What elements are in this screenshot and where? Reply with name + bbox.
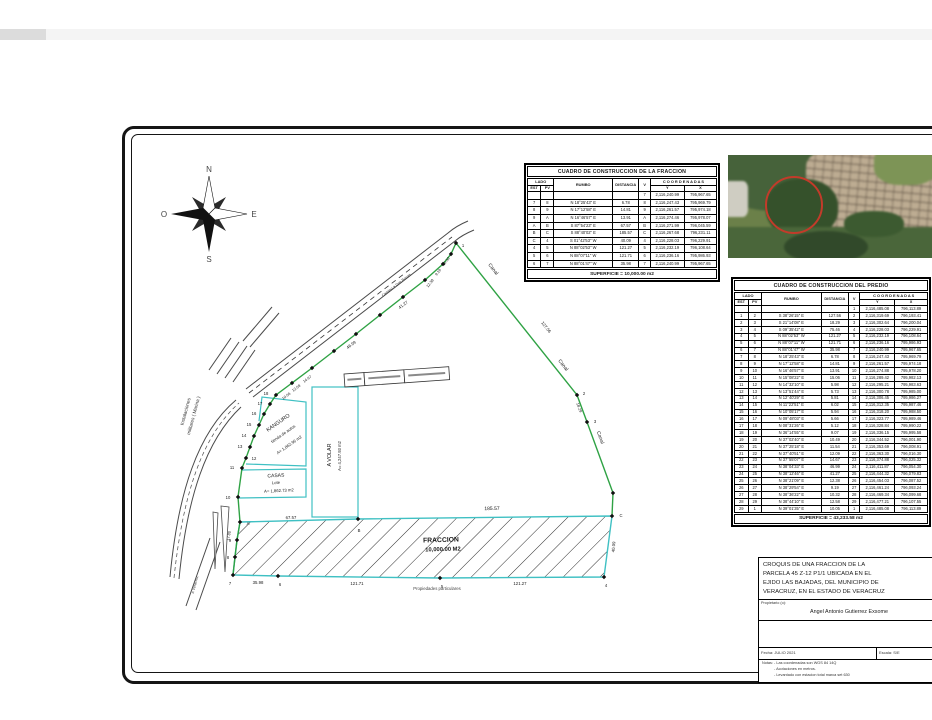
distance-label: 185.57 — [484, 506, 500, 512]
vertex-label: 18 — [264, 391, 269, 396]
table-row: BCS 88°40'02" E185.57C2,116,267.68796,23… — [528, 230, 717, 238]
empty-box — [759, 621, 932, 648]
vertex-marker — [252, 434, 256, 438]
distance-label: 40.09 — [611, 541, 617, 553]
distance-label: 35.98 — [253, 580, 264, 585]
distance-label: 121.71 — [350, 581, 364, 586]
area-label-fraccion: 10,000.00 M2 — [425, 547, 461, 554]
vertex-label: 6 — [279, 582, 282, 587]
table-row: 2223N 37°55'07" E14.67232,116,374.88796,… — [735, 457, 928, 464]
table-row: 45N 88°02'53" W121.2752,116,232.19796,10… — [735, 333, 928, 340]
vertex-marker — [257, 423, 261, 427]
table-row: 1213N 13°51'44" E5.73132,116,300.78795,9… — [735, 388, 928, 395]
distance-label: 127.56 — [540, 320, 552, 334]
table-row: 67N 88°01'47" W35.9872,116,240.99795,967… — [528, 260, 717, 268]
table-row: 12,116,485.08796,113.89 — [735, 306, 928, 313]
vertex-label: 8 — [227, 555, 230, 560]
croquis-title: CROQUIS DE UNA FRACCION DE LA PARCELA 45… — [759, 558, 932, 600]
table-row: 1011N 15°08'22" E15.06112,116,289.42795,… — [735, 375, 928, 382]
area-label-fraccion: FRACCION — [423, 537, 459, 545]
vertex-label: 1 — [462, 243, 465, 248]
table-row: 2627N 38°29'54" E9.19272,116,461.24796,0… — [735, 485, 928, 492]
table-cuadro-fraccion: CUADRO DE CONSTRUCCION DE LA FRACCIONLAD… — [524, 163, 720, 282]
table-row: 2526N 38°21'09" E12.38262,116,454.03796,… — [735, 478, 928, 485]
table-row: 72,116,240.99795,967.65 — [528, 192, 717, 200]
table-cuadro-predio: CUADRO DE CONSTRUCCION DEL PREDIOLADORUM… — [731, 277, 931, 527]
distance-label: 9.19 — [434, 268, 442, 276]
lot-avolar — [312, 387, 358, 517]
table-row: 1112N 14°32'10" E5.98122,116,295.21795,9… — [735, 381, 928, 388]
vertex-label: 10 — [226, 495, 231, 500]
table-row: 2122N 37°40'51" E12.09222,116,363.30796,… — [735, 450, 928, 457]
table-row: 2324N 38°04'33" E46.99242,116,411.87796,… — [735, 464, 928, 471]
table-row: 1920N 37°02'40" E10.49202,116,344.52796,… — [735, 437, 928, 444]
vertex-label: 12 — [252, 456, 257, 461]
construction-table: LADORUMBODISTANCIAVC O O R D E N A D A S… — [734, 292, 928, 513]
lot-label-casas: A= 1,862.73 m2 — [264, 487, 295, 494]
canal-label: Canal — [486, 262, 499, 276]
compass-o: O — [161, 210, 167, 219]
vertex-label: C — [619, 513, 622, 518]
vertex-label: A — [247, 521, 250, 526]
vertex-label: 17 — [258, 401, 263, 406]
table-row: 1819N 36°14'55" E9.07192,116,336.15795,9… — [735, 430, 928, 437]
table-row: 2021N 37°25'18" E11.54212,116,353.69796,… — [735, 444, 928, 451]
lot-label-casas: CASAS — [267, 473, 285, 480]
vertex-marker — [585, 420, 589, 424]
lot-label-avolar: A VOLAR — [327, 443, 333, 466]
vertex-label: 4 — [605, 583, 608, 588]
commerce-strip — [344, 367, 450, 387]
satellite-image — [728, 155, 932, 258]
compass-rose: N S E O — [161, 165, 257, 264]
table-row: 2425N 38°12'46" E41.27252,116,444.32796,… — [735, 471, 928, 478]
escala-cell: Escala: S/E — [877, 648, 932, 659]
table-row: 45N 88°02'53" W121.2752,116,232.19796,10… — [528, 245, 717, 253]
table-row: 56N 88°07'11" W121.7162,116,236.16795,98… — [735, 340, 928, 347]
fecha-cell: Fecha: JULIO 2021 — [759, 648, 877, 659]
table-row: 2728N 38°36'22" E10.32282,116,469.34796,… — [735, 492, 928, 499]
compass-n: N — [206, 165, 212, 174]
table-row: 56N 88°07'11" W121.7162,116,236.16795,98… — [528, 252, 717, 260]
table-row: 1617N 09°48'03" E5.66172,116,323.77795,9… — [735, 416, 928, 423]
table-title: CUADRO DE CONSTRUCCION DEL PREDIO — [734, 280, 928, 291]
vertex-marker — [248, 445, 252, 449]
table-row: 1516N 10°05'17" E5.94162,116,318.20795,9… — [735, 409, 928, 416]
table-title: CUADRO DE CONSTRUCCION DE LA FRACCION — [527, 166, 717, 177]
distance-label: 18.29 — [575, 402, 583, 414]
satellite-texture — [728, 155, 932, 258]
neighbor-label: Propiedades particulares — [413, 586, 461, 591]
table-row: 78N 18°25'43" E6.7882,116,247.43795,969.… — [735, 354, 928, 361]
vertex-label: 11 — [230, 465, 235, 470]
table-row: 89N 17°12'58" E14.8192,116,261.57795,974… — [735, 361, 928, 368]
compass-s: S — [206, 255, 211, 264]
vertex-marker — [611, 491, 615, 495]
table-row: 9AN 16°46'57" E13.91A2,116,274.46795,978… — [528, 214, 717, 222]
meta-row: Fecha: JULIO 2021 Escala: S/E — [759, 648, 932, 660]
vertex-marker — [244, 456, 248, 460]
lot-label-casas: Lote — [272, 480, 281, 485]
table-row: 1718N 08°31'26" E5.12182,116,328.84795,9… — [735, 423, 928, 430]
owner-box: Propietario (o): Angel Antonio Gutierrez… — [759, 600, 932, 621]
location-circle — [765, 176, 823, 234]
fraccion-polygon — [233, 516, 612, 578]
vertex-label: B — [358, 528, 361, 533]
vertex-label: 13 — [238, 444, 243, 449]
canal-label: Canal — [556, 358, 569, 372]
table-row: 23S 21°14'08" E18.2932,116,302.64796,200… — [735, 319, 928, 326]
vertex-label: 2 — [583, 391, 586, 396]
scanned-survey-sheet: N S E O CanalCanalCanal127.5618.2941.274… — [0, 0, 932, 720]
vertex-label: 16 — [252, 411, 257, 416]
table-row: C4S 01°42'53" W40.0942,116,228.03796,229… — [528, 237, 717, 245]
construction-table: LADORUMBODISTANCIAVC O O R D E N A D A S… — [527, 178, 717, 268]
notes-box: Notas: - Las coordenadas son WGS 84 14Q … — [759, 660, 932, 682]
distance-label: 121.27 — [513, 581, 527, 586]
table-row: 910N 16°46'57" E13.91102,116,274.88795,9… — [735, 368, 928, 375]
road-label: a Veracruz — [191, 575, 200, 594]
table-row: 1415N 11°22'51" E6.02152,116,312.35795,9… — [735, 402, 928, 409]
superficie-footer: SUPERFICIE = 10,000.00 m2 — [527, 269, 717, 279]
table-row: 1314N 12°40'29" E5.81142,116,306.45795,9… — [735, 395, 928, 402]
distance-label: 14.67 — [302, 375, 312, 384]
distance-label: 67.57 — [286, 515, 297, 520]
canal-label: Canal — [595, 430, 605, 444]
table-row: 12S 38°26'15" E127.5622,116,319.69796,19… — [735, 313, 928, 320]
owner-label: Propietario (o): — [761, 601, 786, 605]
table-row: 291N 39°01'35" E10.0512,116,485.08796,11… — [735, 506, 928, 513]
title-block: CROQUIS DE UNA FRACCION DE LA PARCELA 45… — [758, 557, 932, 683]
vertex-label: 7 — [229, 581, 232, 586]
vertex-label: 14 — [242, 433, 247, 438]
owner-name: Angel Antonio Gutierrez Exsome — [759, 609, 932, 615]
superficie-footer: SUPERFICIE = 43,233.58 m2 — [734, 514, 928, 524]
compass-e: E — [251, 210, 256, 219]
canal-boundary — [456, 243, 613, 516]
table-row: ABS 87°54'23" E67.57B2,116,271.99796,045… — [528, 222, 717, 230]
distance-label: 12.09 — [291, 384, 301, 393]
table-row: 78N 18°25'43" E6.7882,116,247.43795,969.… — [528, 199, 717, 207]
table-row: 89N 17°12'58" E14.8192,116,261.57795,974… — [528, 207, 717, 215]
lot-label-avolar: A= 4,247.93 m2 — [337, 440, 342, 470]
vertex-label: 9 — [229, 538, 232, 543]
table-row: 2829N 38°44'10" E12.58292,116,477.21796,… — [735, 499, 928, 506]
table-row: 34S 09°35'42" E75.4642,116,228.03796,229… — [735, 326, 928, 333]
vertex-label: 15 — [247, 422, 252, 427]
vertex-label: 3 — [594, 419, 597, 424]
table-row: 67N 88°01'47" W35.9872,116,240.99795,967… — [735, 347, 928, 354]
